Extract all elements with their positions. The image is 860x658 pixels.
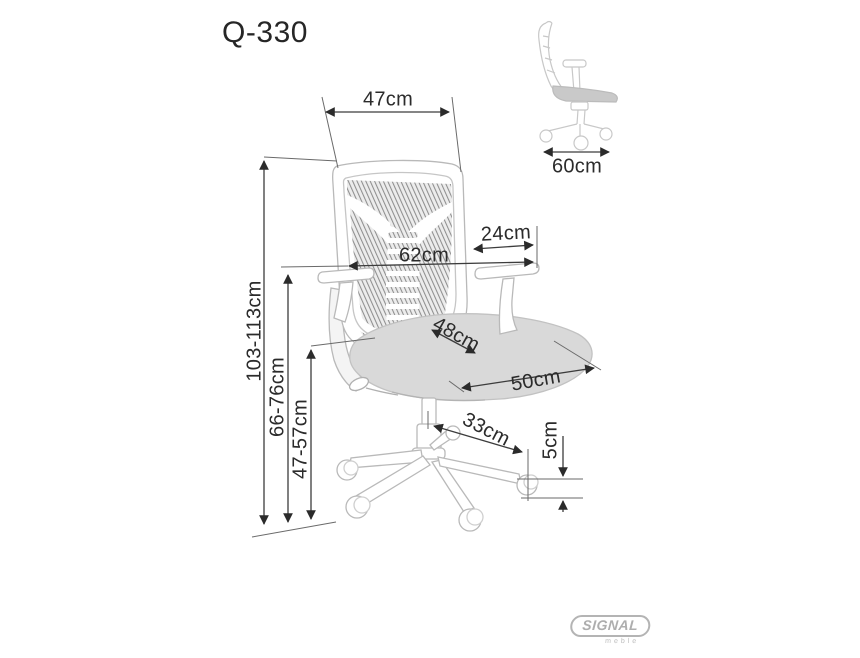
logo-sub-text: meble bbox=[569, 638, 649, 645]
chair-side-drawing bbox=[539, 22, 618, 151]
product-dimension-diagram: Q-330 47cm 60cm 24cm 62cm 48cm 50cm 33cm… bbox=[0, 0, 860, 658]
dim-armrest-length-label: 24cm bbox=[480, 221, 531, 247]
dim-depth-label: 60cm bbox=[552, 156, 602, 179]
dim-total-height-label: 103-113cm bbox=[244, 280, 267, 381]
product-model-title: Q-330 bbox=[222, 16, 308, 50]
dim-armrest-height-label: 66-76cm bbox=[267, 357, 290, 437]
dim-backrest-width-label: 47cm bbox=[363, 89, 413, 112]
dim-caster-height-label: 5cm bbox=[540, 421, 563, 460]
dim-seat-height-label: 47-57cm bbox=[290, 399, 313, 479]
logo-brand-text: SIGNAL bbox=[570, 615, 652, 637]
signal-logo: SIGNAL meble bbox=[569, 615, 651, 645]
dim-overall-width-label: 62cm bbox=[399, 245, 449, 268]
